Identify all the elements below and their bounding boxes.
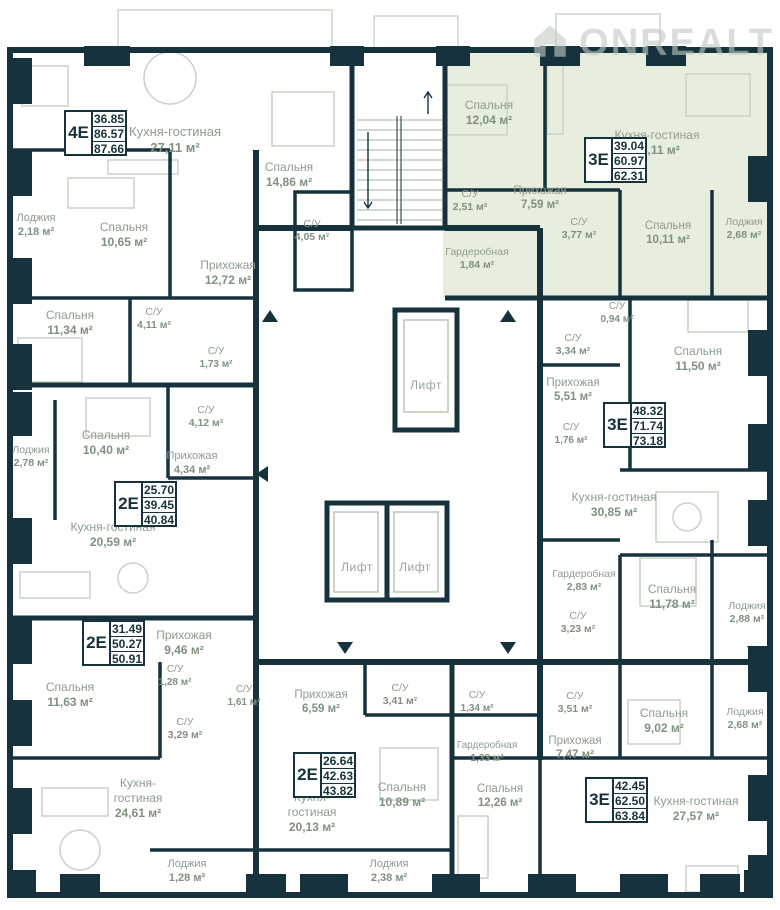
- room-area: 20,59 м²: [71, 535, 156, 550]
- room-name: С/У: [137, 306, 171, 319]
- room-name: С/У: [200, 346, 233, 359]
- room-name: Спальня: [645, 219, 691, 233]
- room-name: Гардеробная: [552, 568, 616, 581]
- apartment-area-value: 42.45: [614, 779, 646, 794]
- room-name: Прихожая: [546, 376, 599, 390]
- apartment-area-value: 43.82: [322, 784, 354, 798]
- room-label: Прихожая6,59 м²: [294, 688, 347, 717]
- room-name: Лоджия: [17, 212, 56, 226]
- apartment-badge-2e: 2E25.7039.4540.84: [114, 481, 177, 527]
- room-name: Спальня: [100, 220, 148, 235]
- room-name: С/У: [168, 716, 203, 729]
- entry-arrow-icon: [747, 646, 763, 658]
- room-name: Гардеробная: [457, 740, 518, 753]
- room-name: С/У: [159, 664, 192, 677]
- apartment-area-values: 31.4950.2750.91: [111, 622, 143, 664]
- room-label: Спальня10,89 м²: [378, 780, 426, 810]
- room-area: 1,34 м²: [461, 703, 494, 716]
- room-label: Лоджия2,38 м²: [370, 858, 409, 886]
- room-area: 9,02 м²: [640, 721, 688, 736]
- entry-arrow-icon: [500, 642, 516, 654]
- room-area: 10,11 м²: [645, 233, 691, 247]
- entry-arrow-icon: [256, 466, 268, 482]
- elevator-label: Лифт: [410, 378, 442, 393]
- room-label: Спальня11,50 м²: [674, 344, 722, 374]
- room-area: 2,83 м²: [552, 581, 616, 594]
- room-area: 1,73 м²: [200, 359, 233, 372]
- room-name: Кухня-гостиная: [572, 490, 657, 505]
- room-area: 3,29 м²: [168, 729, 203, 742]
- room-label: Лоджия2,88 м²: [728, 600, 765, 626]
- apartment-area-value: 39.04: [613, 139, 645, 154]
- room-area: 24,61 м²: [114, 806, 163, 821]
- room-label: Гардеробная2,83 м²: [552, 568, 616, 594]
- room-area: 5,51 м²: [546, 390, 599, 404]
- room-label: Гардеробная1,33 м²: [457, 740, 518, 765]
- apartment-badge-2e: 2E26.6442.6343.82: [293, 752, 356, 798]
- room-name: Спальня: [46, 308, 94, 323]
- room-name: Лоджия: [725, 216, 762, 229]
- room-area: 4,05 м²: [295, 231, 330, 244]
- room-name: С/У: [453, 188, 488, 201]
- room-label: Спальня10,11 м²: [645, 219, 691, 248]
- room-name: Спальня: [82, 428, 130, 443]
- room-area: 2,78 м²: [12, 457, 49, 470]
- room-label: С/У3,51 м²: [558, 690, 593, 716]
- room-area: 4,12 м²: [189, 417, 224, 430]
- watermark: ONREALT: [529, 20, 774, 67]
- room-name: С/У: [555, 422, 588, 435]
- apartment-area-values: 25.7039.4540.84: [143, 483, 175, 525]
- apartment-area-value: 50.91: [111, 652, 143, 666]
- room-label: С/У3,23 м²: [561, 610, 596, 636]
- room-area: 1,84 м²: [445, 259, 509, 272]
- room-name: Спальня: [265, 160, 313, 175]
- room-name: Спальня: [648, 582, 696, 597]
- room-label: Прихожая5,51 м²: [546, 376, 599, 405]
- room-area: 10,40 м²: [82, 443, 130, 458]
- room-area: 27,57 м²: [654, 809, 739, 824]
- room-label: Лоджия1,28 м²: [168, 858, 207, 886]
- room-label: Прихожая12,72 м²: [200, 258, 256, 288]
- room-label: Спальня9,02 м²: [640, 706, 688, 736]
- room-name: С/У: [383, 682, 418, 695]
- room-label: С/У3,77 м²: [562, 216, 597, 242]
- apartment-area-value: 50.27: [111, 637, 143, 652]
- room-name: С/У: [558, 690, 593, 703]
- room-name: Прихожая: [513, 184, 566, 198]
- apartment-badge-4e: 4E36.8586.5787.66: [64, 110, 127, 156]
- apartment-area-value: 48.32: [632, 404, 664, 419]
- room-label: Спальня10,40 м²: [82, 428, 130, 458]
- room-area: 0,94 м²: [601, 314, 634, 327]
- apartment-area-value: 26.64: [322, 754, 354, 769]
- apartment-badge-3e: 3E42.4562.5063.84: [585, 777, 648, 823]
- apartment-area-value: 71.74: [632, 419, 664, 434]
- room-label: Спальня14,86 м²: [265, 160, 313, 190]
- room-area: 12,72 м²: [200, 273, 256, 288]
- room-label: Лоджия2,68 м²: [726, 706, 763, 732]
- room-area: 4,11 м²: [137, 319, 171, 332]
- room-area: 4,34 м²: [167, 464, 218, 478]
- room-label: С/У2,51 м²: [453, 188, 488, 214]
- room-label: С/У3,29 м²: [168, 716, 203, 742]
- room-name: С/У: [562, 216, 597, 229]
- apartment-area-value: 42.63: [322, 769, 354, 784]
- room-label: Кухня-гостиная30,85 м²: [572, 490, 657, 520]
- apartment-area-value: 39.45: [143, 498, 175, 513]
- apartment-area-values: 48.3271.7473.18: [632, 404, 664, 446]
- entry-arrow-icon: [262, 310, 278, 322]
- apartment-area-values: 39.0460.9762.31: [613, 139, 645, 181]
- room-name: Спальня: [46, 680, 94, 695]
- apartment-area-value: 62.50: [614, 794, 646, 809]
- room-name: Лифт: [410, 378, 442, 393]
- room-name: Спальня: [674, 344, 722, 359]
- room-label: Спальня10,65 м²: [100, 220, 148, 250]
- room-area: 30,85 м²: [572, 505, 657, 520]
- elevator-label: Лифт: [341, 560, 373, 575]
- room-name: Прихожая: [200, 258, 256, 273]
- room-area: 10,89 м²: [378, 795, 426, 810]
- room-area: 11,63 м²: [46, 695, 94, 710]
- room-name: С/У: [561, 610, 596, 623]
- apartment-type: 2E: [295, 754, 322, 796]
- room-name: С/У: [228, 684, 261, 697]
- floor-plan: Кухня-гостиная27,11 м²Лоджия2,18 м²Спаль…: [0, 0, 780, 910]
- room-area: 1,33 м²: [457, 753, 518, 766]
- apartment-area-value: 25.70: [143, 483, 175, 498]
- room-label: Кухня-гостиная24,61 м²: [114, 776, 163, 821]
- room-area: 2,88 м²: [728, 613, 765, 626]
- room-label: Прихожая7,59 м²: [513, 184, 566, 213]
- room-label: С/У3,41 м²: [383, 682, 418, 708]
- room-name: Прихожая: [294, 688, 347, 702]
- room-name: Прихожая: [167, 450, 218, 464]
- room-area: 9,46 м²: [156, 643, 212, 658]
- room-name: Кухня-гостиная: [129, 124, 221, 140]
- room-name: С/У: [461, 690, 494, 703]
- room-label: Лоджия2,78 м²: [12, 444, 49, 470]
- room-area: 2,51 м²: [453, 201, 488, 214]
- room-area: 12,04 м²: [465, 113, 513, 128]
- apartment-area-value: 87.66: [93, 142, 125, 156]
- apartment-area-value: 63.84: [614, 809, 646, 823]
- room-name: Гардеробная: [445, 246, 509, 259]
- room-label: Лоджия2,68 м²: [725, 216, 762, 242]
- room-name: Спальня: [477, 782, 523, 796]
- room-area: 14,86 м²: [265, 175, 313, 190]
- room-label: Спальня11,34 м²: [46, 308, 94, 338]
- room-area: 3,41 м²: [383, 695, 418, 708]
- apartment-badge-3e: 3E48.3271.7473.18: [603, 402, 666, 448]
- apartment-type: 3E: [605, 404, 632, 446]
- apartment-badge-3e: 3E39.0460.9762.31: [584, 137, 647, 183]
- room-area: 11,78 м²: [648, 597, 696, 612]
- room-area: 2,38 м²: [370, 872, 409, 886]
- room-name: гостиная: [114, 791, 163, 806]
- room-area: 27,11 м²: [129, 140, 221, 156]
- room-name: Прихожая: [548, 734, 601, 748]
- apartment-area-value: 40.84: [143, 513, 175, 527]
- room-name: С/У: [295, 218, 330, 231]
- room-label: С/У4,12 м²: [189, 404, 224, 430]
- room-name: С/У: [189, 404, 224, 417]
- room-label: С/У1,76 м²: [555, 422, 588, 447]
- room-label: Гардеробная1,84 м²: [445, 246, 509, 272]
- room-label: Спальня12,04 м²: [465, 98, 513, 128]
- room-area: 10,65 м²: [100, 235, 148, 250]
- room-name: С/У: [601, 301, 634, 314]
- room-label: Прихожая9,46 м²: [156, 628, 212, 658]
- apartment-area-value: 31.49: [111, 622, 143, 637]
- apartment-area-values: 42.4562.5063.84: [614, 779, 646, 821]
- room-area: 1,76 м²: [555, 435, 588, 448]
- apartment-type: 2E: [84, 622, 111, 664]
- room-label: Спальня11,63 м²: [46, 680, 94, 710]
- room-name: Кухня-: [114, 776, 163, 791]
- apartment-area-value: 86.57: [93, 127, 125, 142]
- room-label: С/У1,73 м²: [200, 346, 233, 371]
- room-name: Спальня: [465, 98, 513, 113]
- labels-layer: Кухня-гостиная27,11 м²Лоджия2,18 м²Спаль…: [0, 0, 780, 910]
- room-name: гостиная: [288, 805, 337, 820]
- room-area: 12,26 м²: [477, 796, 523, 810]
- apartment-area-value: 73.18: [632, 434, 664, 448]
- apartment-type: 2E: [116, 483, 143, 525]
- room-label: С/У3,34 м²: [556, 332, 591, 358]
- room-name: Лифт: [399, 560, 431, 575]
- apartment-area-value: 36.85: [93, 112, 125, 127]
- room-name: Лоджия: [728, 600, 765, 613]
- room-label: С/У4,11 м²: [137, 306, 171, 332]
- entry-arrow-icon: [337, 642, 353, 654]
- room-area: 3,23 м²: [561, 623, 596, 636]
- room-area: 11,50 м²: [674, 359, 722, 374]
- room-label: Спальня11,78 м²: [648, 582, 696, 612]
- room-area: 1,28 м²: [168, 872, 207, 886]
- room-name: Лоджия: [726, 706, 763, 719]
- room-label: Кухня-гостиная27,11 м²: [129, 124, 221, 157]
- room-label: С/У4,05 м²: [295, 218, 330, 244]
- room-area: 3,34 м²: [556, 345, 591, 358]
- room-name: Лоджия: [12, 444, 49, 457]
- watermark-text: ONREALT: [579, 22, 774, 65]
- room-area: 1,28 м²: [159, 677, 192, 690]
- room-label: Прихожая7,47 м²: [548, 734, 601, 763]
- room-area: 1,61 м²: [228, 697, 261, 710]
- apartment-area-value: 60.97: [613, 154, 645, 169]
- apartment-type: 3E: [586, 139, 613, 181]
- room-area: 11,34 м²: [46, 323, 94, 338]
- room-area: 7,59 м²: [513, 198, 566, 212]
- entry-arrow-icon: [500, 310, 516, 322]
- room-area: 3,77 м²: [562, 229, 597, 242]
- apartment-area-value: 62.31: [613, 169, 645, 183]
- room-name: Спальня: [640, 706, 688, 721]
- room-name: Прихожая: [156, 628, 212, 643]
- onrealt-logo-house-icon: [529, 20, 571, 67]
- apartment-area-values: 36.8586.5787.66: [93, 112, 125, 154]
- room-label: С/У0,94 м²: [601, 301, 634, 326]
- apartment-type: 3E: [587, 779, 614, 821]
- apartment-type: 4E: [66, 112, 93, 154]
- room-label: С/У1,34 м²: [461, 690, 494, 715]
- room-label: С/У1,28 м²: [159, 664, 192, 689]
- room-area: 7,47 м²: [548, 748, 601, 762]
- room-name: Лифт: [341, 560, 373, 575]
- room-name: С/У: [556, 332, 591, 345]
- room-area: 6,59 м²: [294, 702, 347, 716]
- room-label: С/У1,61 м²: [228, 684, 261, 709]
- room-area: 3,51 м²: [558, 703, 593, 716]
- room-label: Лоджия2,18 м²: [17, 212, 56, 240]
- room-name: Спальня: [378, 780, 426, 795]
- room-name: Лоджия: [370, 858, 409, 872]
- room-label: Прихожая4,34 м²: [167, 450, 218, 478]
- room-name: Лоджия: [168, 858, 207, 872]
- apartment-area-values: 26.6442.6343.82: [322, 754, 354, 796]
- room-area: 20,13 м²: [288, 820, 337, 835]
- room-label: Спальня12,26 м²: [477, 782, 523, 811]
- room-area: 2,68 м²: [726, 719, 763, 732]
- room-label: Кухня-гостиная27,57 м²: [654, 794, 739, 824]
- elevator-label: Лифт: [399, 560, 431, 575]
- room-area: 2,68 м²: [725, 229, 762, 242]
- room-name: Кухня-гостиная: [654, 794, 739, 809]
- apartment-badge-2e: 2E31.4950.2750.91: [82, 620, 145, 666]
- room-area: 2,18 м²: [17, 226, 56, 240]
